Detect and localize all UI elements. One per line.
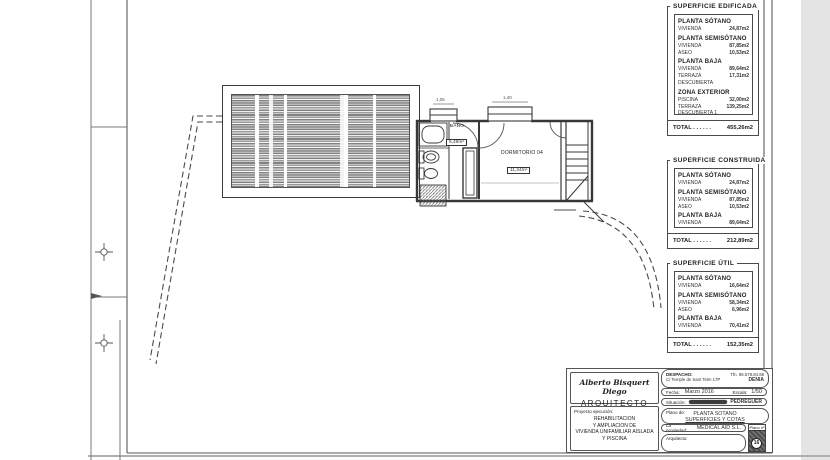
row-label: VIVIENDA <box>678 180 701 187</box>
window-dim-2: 1,40 <box>503 95 512 100</box>
row-value: 139,25m2 <box>726 104 749 115</box>
table-row: VIVIENDA 87,85m2 <box>678 197 749 204</box>
row-value: 87,85m2 <box>729 43 749 50</box>
row-value: 16,64m2 <box>729 283 749 290</box>
situacion-city: PEDREGUER <box>730 399 762 405</box>
table-section: PLANTA SÓTANO VIVIENDA 24,87m2 <box>678 172 749 187</box>
table-section: PLANTA SEMISÓTANO VIVIENDA 87,85m2 ASEO … <box>678 35 749 57</box>
total-value: 455,26m2 <box>727 125 753 131</box>
bedroom-label: DORMITORIO 04 <box>493 150 551 156</box>
row-label: VIVIENDA <box>678 26 701 33</box>
row-label: VIVIENDA <box>678 323 701 330</box>
row-label: ASEO <box>678 50 692 57</box>
superficie-util-table: SUPERFICIE ÚTIL PLANTA SÓTANO VIVIENDA 1… <box>667 263 759 353</box>
table-body: PLANTA SÓTANO VIVIENDA 16,64m2 PLANTA SE… <box>674 271 753 332</box>
stairs <box>566 122 604 222</box>
table-row: ASEO 10,53m2 <box>678 50 749 57</box>
total-label: TOTAL . . . . . . <box>673 125 711 131</box>
propiedad-value: MEDICAL AID S.L. <box>697 425 741 431</box>
table-row: VIVIENDA 89,64m2 <box>678 66 749 73</box>
bathroom-label: BAÑO <box>446 124 468 129</box>
project-label: Proyecto ejecución: <box>574 409 658 414</box>
dashed-boundary-right <box>579 211 661 310</box>
table-section: PLANTA BAJA VIVIENDA 89,64m2 TERRAZA DES… <box>678 58 749 86</box>
table-row: VIVIENDA 24,87m2 <box>678 180 749 187</box>
row-value: 32,00m2 <box>729 97 749 104</box>
plano-line-2: SUPERFICIES Y COTAS <box>662 417 768 423</box>
window-2 <box>488 102 532 121</box>
window-dim-1: 1,05 <box>436 97 445 102</box>
row-value: 89,64m2 <box>729 220 749 227</box>
architect-name: Alberto Bisquert Diego <box>571 378 658 396</box>
section-header: PLANTA SÓTANO <box>678 172 749 180</box>
total-value: 212,89m2 <box>727 238 753 244</box>
table-row: VIVIENDA 89,64m2 <box>678 220 749 227</box>
despacho-address: C/ Temple de Sant Telm 17P <box>666 377 720 382</box>
despacho-row: DESPACHO: C/ Temple de Sant Telm 17P Tfn… <box>661 369 769 388</box>
superficie-construida-table: SUPERFICIE CONSTRUIDA PLANTA SÓTANO VIVI… <box>667 160 759 249</box>
row-label: TERRAZA DESCUBIERTA <box>678 73 729 87</box>
section-header: PLANTA SEMISÓTANO <box>678 189 749 197</box>
row-label: VIVIENDA <box>678 66 701 73</box>
door-arcs <box>453 122 566 148</box>
table-section: PLANTA BAJA VIVIENDA 89,64m2 <box>678 212 749 227</box>
row-value: 10,53m2 <box>729 50 749 57</box>
row-label: VIVIENDA <box>678 283 701 290</box>
row-value: 24,87m2 <box>729 26 749 33</box>
section-header: PLANTA SEMISÓTANO <box>678 292 749 300</box>
escala-value: 1/50 <box>751 389 762 395</box>
table-row: VIVIENDA 87,85m2 <box>678 43 749 50</box>
survey-crosshair-2 <box>95 334 113 352</box>
table-total: TOTAL . . . . . . 212,89m2 <box>668 233 758 248</box>
situacion-label: Situación: <box>666 400 686 405</box>
superficie-edificada-table: SUPERFICIE EDIFICADA PLANTA SÓTANO VIVIE… <box>667 6 759 136</box>
section-header: PLANTA SEMISÓTANO <box>678 35 749 43</box>
row-label: PISCINA <box>678 97 698 104</box>
row-label: VIVIENDA <box>678 300 701 307</box>
bedroom-area: 11,34m² <box>507 167 530 174</box>
project-line: VIVIENDA UNIFAMILIAR AISLADA <box>571 429 658 436</box>
total-value: 152,35m2 <box>727 342 753 348</box>
table-row: PISCINA 32,00m2 <box>678 97 749 104</box>
table-total: TOTAL . . . . . . 152,35m2 <box>668 337 758 352</box>
despacho-city: DENIA <box>730 377 764 383</box>
row-label: ASEO <box>678 204 692 211</box>
plano-number: 16 <box>751 438 762 449</box>
fecha-value: Marzo 2016 <box>685 389 714 395</box>
table-title: SUPERFICIE CONSTRUIDA <box>670 157 769 164</box>
row-value: 10,53m2 <box>729 204 749 211</box>
table-row: ASEO 6,96m2 <box>678 307 749 314</box>
situacion-row: Situación: PEDREGUER <box>661 398 767 406</box>
section-header: ZONA EXTERIOR <box>678 89 749 97</box>
toilet <box>419 168 438 179</box>
row-value: 6,96m2 <box>732 307 749 314</box>
sink <box>419 151 439 163</box>
row-label: ASEO <box>678 307 692 314</box>
table-row: VIVIENDA 58,34m2 <box>678 300 749 307</box>
table-total: TOTAL . . . . . . 455,26m2 <box>668 120 758 135</box>
plano-row: Plano de: PLANTA SOTANO SUPERFICIES Y CO… <box>661 408 769 424</box>
shower-tray <box>420 185 446 206</box>
plano-label: Plano de: <box>666 410 685 415</box>
table-section: PLANTA BAJA VIVIENDA 70,41m2 <box>678 315 749 330</box>
boundary-strip <box>91 0 127 460</box>
table-section: PLANTA SÓTANO VIVIENDA 24,87m2 <box>678 18 749 33</box>
table-row: VIVIENDA 70,41m2 <box>678 323 749 330</box>
project-line: Y PISCINA <box>571 436 658 443</box>
row-value: 70,41m2 <box>729 323 749 330</box>
dashed-boundary-left <box>150 116 222 364</box>
row-value: 58,34m2 <box>729 300 749 307</box>
window-1 <box>430 104 457 121</box>
table-row: VIVIENDA 24,87m2 <box>678 26 749 33</box>
table-row: TERRAZA DESCUBIERTA 17,31m2 <box>678 73 749 87</box>
table-body: PLANTA SÓTANO VIVIENDA 24,87m2 PLANTA SE… <box>674 14 753 115</box>
table-section: PLANTA SEMISÓTANO VIVIENDA 87,85m2 ASEO … <box>678 189 749 211</box>
plano-number-box: Plano nº 16 <box>748 424 766 452</box>
row-value: 17,31m2 <box>729 73 749 87</box>
row-label: TERRAZA DESCUBIERTA 1 <box>678 104 726 115</box>
bathroom-area: 5,49m² <box>446 139 467 146</box>
arquitecto-label: Arquitecto: <box>666 436 688 441</box>
table-body: PLANTA SÓTANO VIVIENDA 24,87m2 PLANTA SE… <box>674 168 753 228</box>
row-value: 87,85m2 <box>729 197 749 204</box>
row-value: 24,87m2 <box>729 180 749 187</box>
section-header: PLANTA BAJA <box>678 315 749 323</box>
escala-label: Escala: <box>733 390 748 395</box>
project-box: Proyecto ejecución: REHABILITACION Y AMP… <box>570 406 659 451</box>
total-label: TOTAL . . . . . . <box>673 342 711 348</box>
total-label: TOTAL . . . . . . <box>673 238 711 244</box>
section-header: PLANTA BAJA <box>678 58 749 66</box>
section-header: PLANTA BAJA <box>678 212 749 220</box>
propiedad-label: La propiedad: <box>666 424 691 432</box>
propiedad-row: La propiedad: MEDICAL AID S.L. <box>661 424 746 432</box>
survey-crosshair-1 <box>95 243 113 261</box>
table-section: ZONA EXTERIOR PISCINA 32,00m2 TERRAZA DE… <box>678 89 749 115</box>
situacion-redacted <box>689 400 728 404</box>
row-label: VIVIENDA <box>678 197 701 204</box>
table-title: SUPERFICIE EDIFICADA <box>670 3 760 10</box>
row-value: 89,64m2 <box>729 66 749 73</box>
section-header: PLANTA SÓTANO <box>678 275 749 283</box>
section-header: PLANTA SÓTANO <box>678 18 749 26</box>
table-row: ASEO 10,53m2 <box>678 204 749 211</box>
architect-box: Alberto Bisquert Diego ARQUITECTO <box>570 372 659 404</box>
table-row: TERRAZA DESCUBIERTA 1 139,25m2 <box>678 104 749 115</box>
fecha-label: Fecha: <box>666 390 680 395</box>
table-section: PLANTA SEMISÓTANO VIVIENDA 58,34m2 ASEO … <box>678 292 749 314</box>
bathtub <box>419 123 447 146</box>
row-label: VIVIENDA <box>678 43 701 50</box>
drawing-sheet: BAÑO 5,49m² DORMITORIO 04 11,34m² 1,05 1… <box>0 0 830 460</box>
signature-box: Arquitecto: <box>661 434 746 452</box>
table-section: PLANTA SÓTANO VIVIENDA 16,64m2 <box>678 275 749 290</box>
table-row: VIVIENDA 16,64m2 <box>678 283 749 290</box>
fecha-escala-row: Fecha: Marzo 2016 Escala: 1/50 <box>661 388 767 396</box>
table-title: SUPERFICIE ÚTIL <box>670 260 737 267</box>
row-label: VIVIENDA <box>678 220 701 227</box>
